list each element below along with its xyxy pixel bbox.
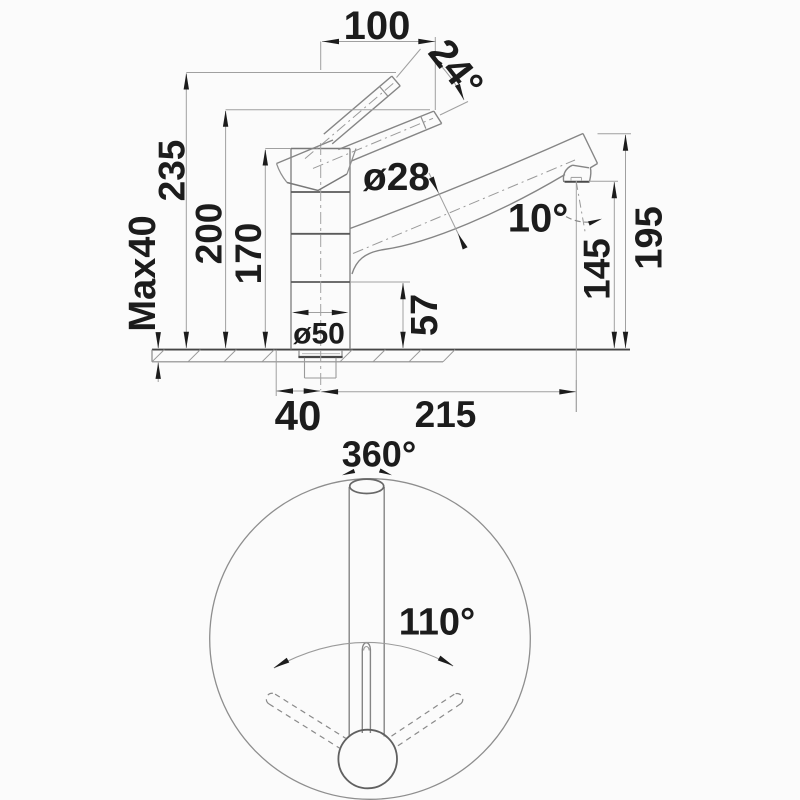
svg-text:ø28: ø28 — [363, 156, 430, 199]
svg-text:ø50: ø50 — [293, 318, 345, 351]
svg-text:200: 200 — [189, 203, 230, 265]
svg-text:10°: 10° — [508, 197, 569, 241]
svg-text:Max40: Max40 — [122, 215, 164, 331]
svg-text:100: 100 — [344, 4, 411, 48]
svg-text:110°: 110° — [399, 602, 476, 644]
svg-text:360°: 360° — [342, 434, 416, 475]
svg-text:215: 215 — [415, 394, 477, 435]
svg-text:145: 145 — [577, 238, 618, 300]
svg-text:235: 235 — [152, 140, 193, 202]
svg-text:57: 57 — [404, 294, 446, 336]
svg-text:40: 40 — [275, 392, 322, 439]
svg-text:170: 170 — [228, 223, 269, 285]
svg-text:195: 195 — [629, 206, 671, 269]
